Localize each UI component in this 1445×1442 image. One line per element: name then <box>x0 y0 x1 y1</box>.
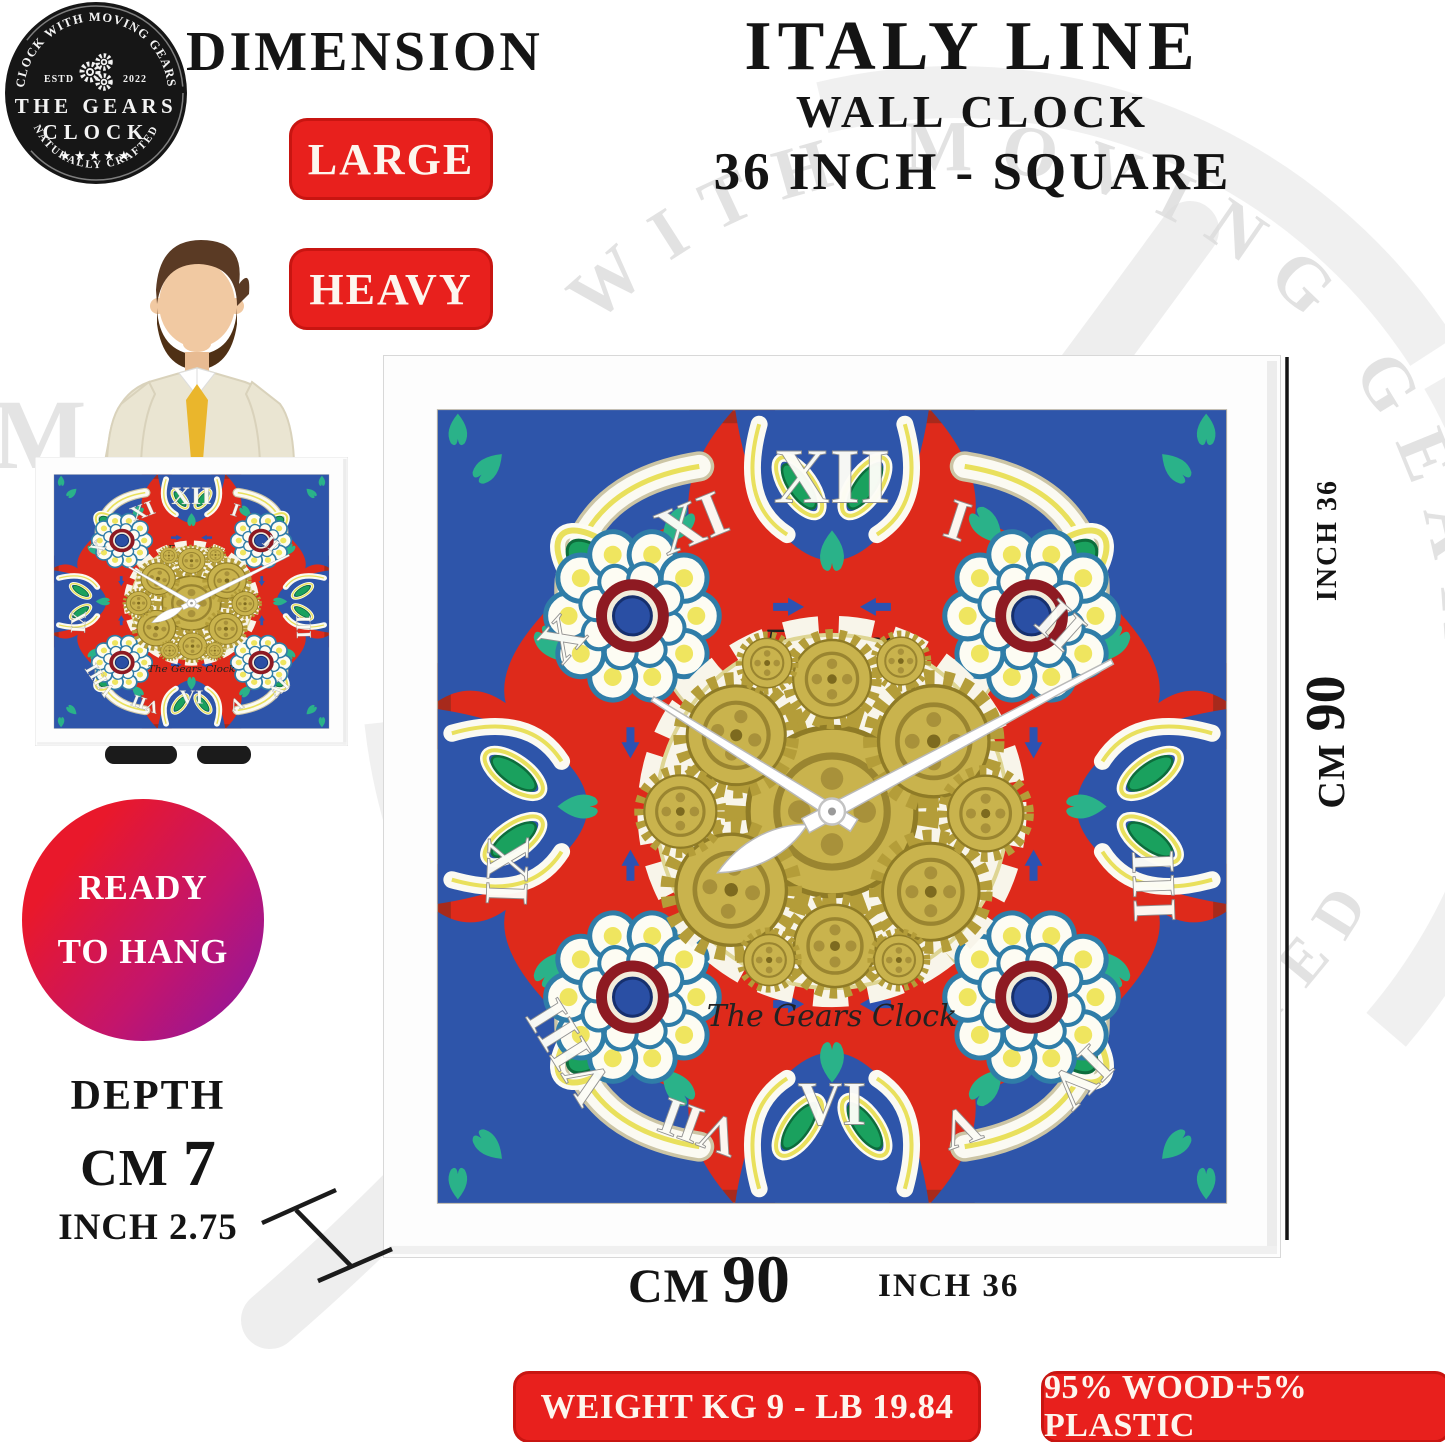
width-inch-label: INCH 36 <box>878 1268 1019 1305</box>
depth-cm-unit: CM <box>80 1140 169 1197</box>
product-title-line3: 36 INCH - SQUARE <box>640 139 1305 205</box>
logo-name-top: THE GEARS <box>15 94 177 118</box>
main-clock-image <box>383 355 1281 1258</box>
large-badge: LARGE <box>289 118 493 200</box>
height-cm-value: 90 <box>1295 675 1357 731</box>
depth-inch: INCH 2.75 <box>38 1206 258 1249</box>
width-cm-unit: CM <box>628 1260 710 1313</box>
ready-line1: READY <box>78 868 207 908</box>
width-cm-label: CM90 <box>628 1240 790 1319</box>
logo-year: 2022 <box>123 74 147 85</box>
material-badge: 95% WOOD+5% PLASTIC <box>1041 1371 1445 1442</box>
height-inch-label: INCH 36 <box>1312 460 1352 620</box>
ready-to-hang-badge: READY TO HANG <box>22 799 264 1041</box>
shoe-left <box>105 745 177 764</box>
weight-badge: WEIGHT KG 9 - LB 19.84 <box>513 1371 981 1442</box>
depth-label: DEPTH <box>38 1072 258 1120</box>
shoe-right <box>197 745 251 764</box>
width-cm-value: 90 <box>722 1241 790 1317</box>
depth-block: DEPTH CM7 INCH 2.75 <box>38 1072 258 1249</box>
product-title-line1: ITALY LINE <box>640 10 1305 84</box>
dimension-heading: DIMENSION <box>186 20 543 84</box>
logo-name-bottom: CLOCK <box>42 120 149 144</box>
depth-cm-value: 7 <box>183 1127 216 1200</box>
depth-cm: CM7 <box>38 1126 258 1202</box>
product-infographic: XII I II III IV V VI VII VIII IX X XI <box>0 0 1445 1442</box>
heavy-badge: HEAVY <box>289 248 493 330</box>
height-cm-unit: CM <box>1311 743 1353 808</box>
product-title-line2: WALL CLOCK <box>640 84 1305 139</box>
height-cm-label: CM90 <box>1294 640 1354 844</box>
small-clock-preview <box>35 457 348 746</box>
logo-estd: ESTD <box>44 74 74 85</box>
brand-logo: CLOCK WITH MOVING GEARS ESTD 2022 THE GE… <box>3 0 189 190</box>
product-title-block: ITALY LINE WALL CLOCK 36 INCH - SQUARE <box>640 10 1305 205</box>
ready-line2: TO HANG <box>58 932 229 972</box>
